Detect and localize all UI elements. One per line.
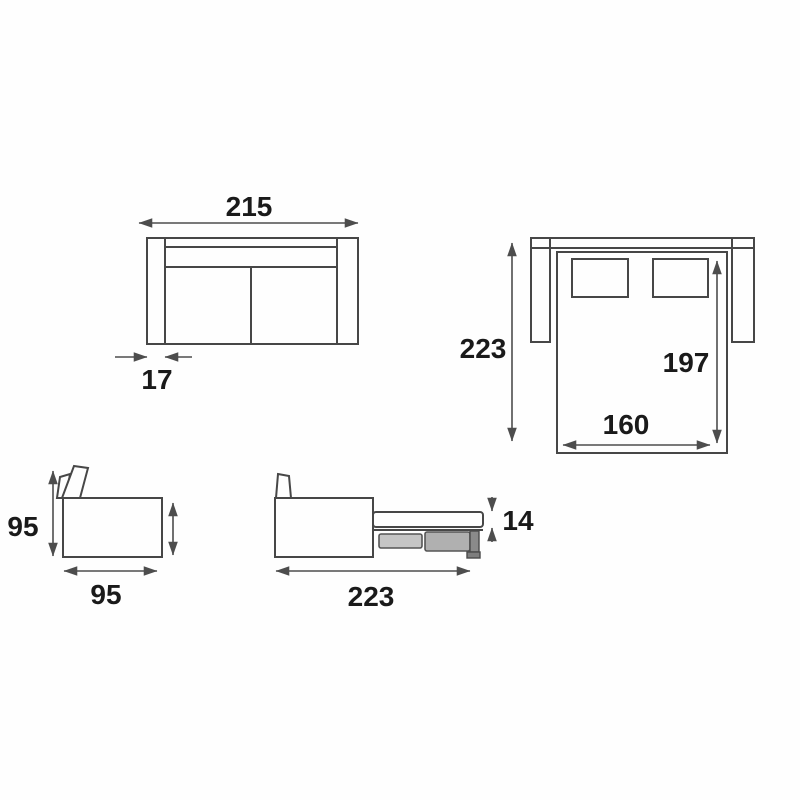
open-sofa-body (275, 498, 373, 557)
bed-top-view: 223 197 160 (460, 238, 754, 453)
pillow-right (653, 259, 708, 297)
sofa-front-outline (147, 238, 358, 344)
right-armrest (732, 238, 754, 342)
sofa-side-view: 95 95 (7, 466, 173, 610)
backrest-bar (531, 238, 754, 248)
bed-length-label: 197 (663, 347, 710, 378)
pullout-mattress-slab (373, 512, 483, 527)
open-backrest-cushion (276, 474, 291, 498)
sofa-front-view: 215 17 (115, 191, 358, 395)
bed-width-label: 160 (603, 409, 650, 440)
pillow-left (572, 259, 628, 297)
height-label: 95 (7, 511, 38, 542)
overall-width-label: 215 (226, 191, 273, 222)
pullout-foot (467, 552, 480, 558)
mechanism-slat-left (379, 534, 422, 548)
depth-label: 95 (90, 579, 121, 610)
pullout-leg (470, 531, 479, 552)
left-armrest (531, 238, 550, 342)
armrest-width-label: 17 (141, 364, 172, 395)
mattress-thickness-label: 14 (502, 505, 534, 536)
open-depth-label: 223 (348, 581, 395, 612)
sofa-bed-dimension-diagram: 215 17 223 (0, 0, 800, 800)
mechanism-slat-right (425, 532, 470, 551)
bed-side-view: 14 223 (275, 474, 534, 612)
diagram-canvas: 215 17 223 (0, 0, 800, 800)
overall-depth-label: 223 (460, 333, 507, 364)
sofa-side-body (63, 498, 162, 557)
